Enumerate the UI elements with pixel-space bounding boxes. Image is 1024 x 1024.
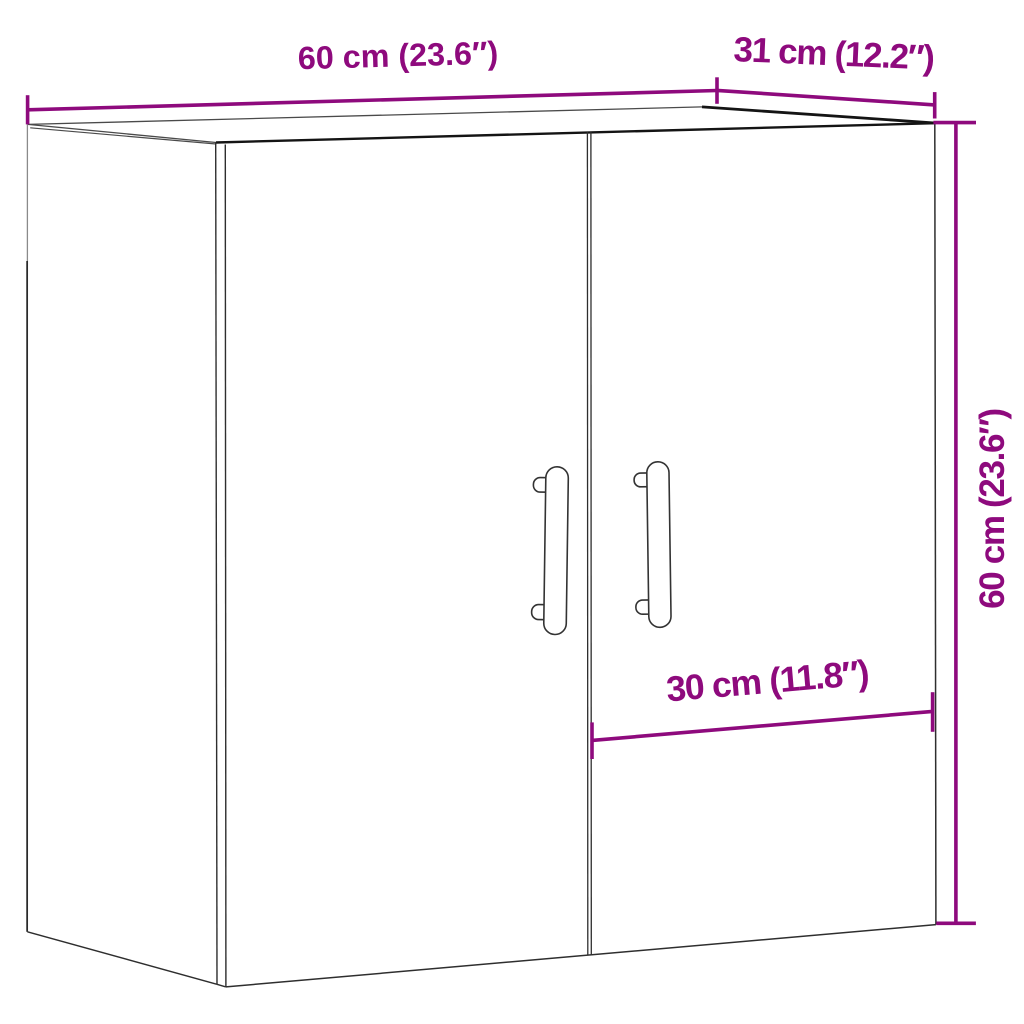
svg-text:60 cm (23.6″): 60 cm (23.6″) bbox=[297, 35, 498, 77]
svg-text:30 cm (11.8″): 30 cm (11.8″) bbox=[665, 653, 870, 710]
svg-text:60 cm (23.6″): 60 cm (23.6″) bbox=[973, 409, 1012, 609]
svg-text:31 cm (12.2″): 31 cm (12.2″) bbox=[733, 30, 935, 78]
